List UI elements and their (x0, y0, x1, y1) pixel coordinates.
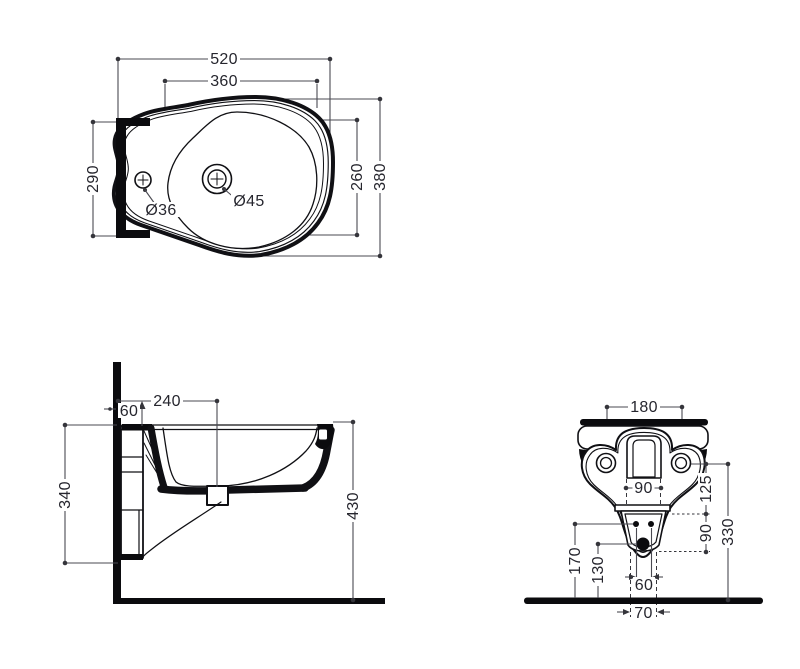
floor-line (113, 598, 385, 604)
bolt-hole-right (648, 521, 654, 527)
mounting-plate (121, 426, 143, 560)
fixing-hole-left (597, 454, 616, 473)
dim-drain-spacing: 70 (633, 605, 655, 622)
dim-drain-hole: Ø45 (231, 193, 268, 210)
svg-text:60: 60 (635, 577, 653, 594)
shelf-edge (615, 505, 670, 511)
dim-mounting-height: 340 (57, 479, 74, 511)
svg-text:180: 180 (630, 399, 658, 416)
svg-text:290: 290 (85, 165, 102, 193)
svg-text:125: 125 (698, 475, 715, 503)
svg-text:60: 60 (120, 403, 138, 420)
svg-text:380: 380 (372, 163, 389, 191)
dim-inlet-width: 90 (633, 480, 655, 497)
dim-faucet-hole: Ø36 (143, 202, 180, 219)
side-view: 240 60 340 430 (57, 362, 385, 604)
dim-shelf-to-outlet: 90 (698, 522, 715, 544)
rear-view: 180 90 125 90 330 (524, 399, 763, 622)
dim-fixing-spacing: 180 (628, 399, 660, 416)
svg-text:70: 70 (634, 605, 652, 622)
svg-text:520: 520 (210, 51, 238, 68)
dim-rim-height: 430 (345, 490, 362, 522)
bolt-hole-left (633, 521, 639, 527)
rim-top-edge (580, 419, 708, 426)
svg-text:360: 360 (210, 73, 238, 90)
dim-overall-depth: 380 (372, 161, 389, 193)
dim-overall-width: 520 (208, 51, 240, 68)
drawing-canvas: 520 360 290 260 380 Ø36 Ø45 (0, 0, 800, 669)
svg-text:130: 130 (590, 556, 607, 584)
dim-wall-side-depth: 290 (85, 163, 102, 195)
inlet-opening (627, 436, 661, 478)
bidet-technical-drawing: 520 360 290 260 380 Ø36 Ø45 (0, 0, 800, 669)
drain-outlet-dot (637, 538, 650, 551)
svg-text:Ø36: Ø36 (145, 202, 176, 219)
dim-fixing-height: 330 (720, 516, 737, 548)
svg-text:340: 340 (57, 481, 74, 509)
dim-drain-from-wall: 240 (151, 393, 183, 410)
svg-text:90: 90 (698, 524, 715, 542)
svg-text:330: 330 (720, 518, 737, 546)
dim-fixing-to-shelf: 125 (698, 473, 715, 505)
svg-text:430: 430 (345, 492, 362, 520)
drain-trap (207, 486, 228, 505)
svg-text:240: 240 (153, 393, 181, 410)
dim-bolt-spacing: 60 (633, 577, 655, 594)
fixing-hole-right (672, 454, 691, 473)
dim-bowl-width: 360 (208, 73, 240, 90)
svg-text:170: 170 (567, 547, 584, 575)
svg-text:260: 260 (349, 163, 366, 191)
plan-view: 520 360 290 260 380 Ø36 Ø45 (85, 51, 389, 258)
svg-text:Ø45: Ø45 (233, 193, 264, 210)
dim-outlet-height: 130 (590, 554, 607, 586)
dim-bolt-height: 170 (567, 545, 584, 577)
wall-section (113, 362, 121, 604)
dim-bowl-depth: 260 (349, 161, 366, 193)
svg-text:90: 90 (634, 480, 652, 497)
dim-wall-clearance: 60 (118, 403, 140, 420)
